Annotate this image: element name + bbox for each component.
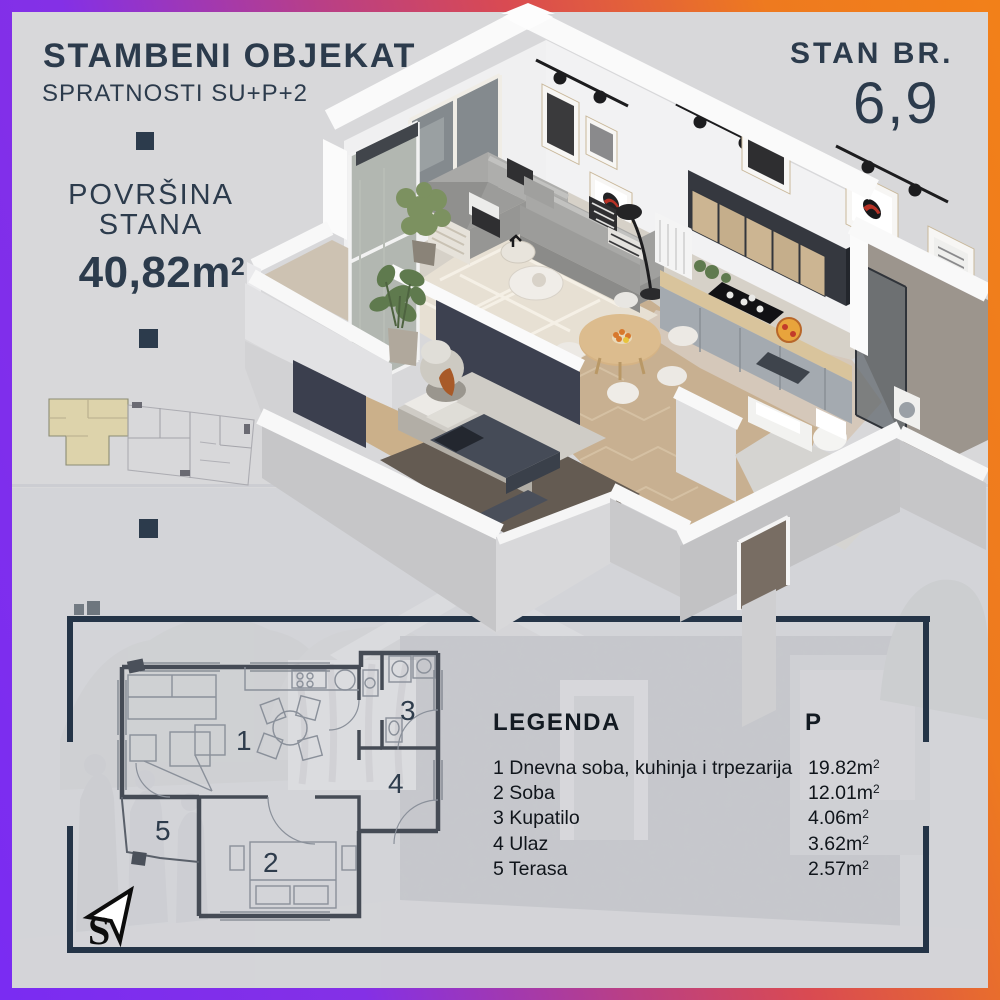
svg-text:1: 1 <box>236 725 252 756</box>
svg-text:2: 2 <box>263 847 279 878</box>
svg-text:4: 4 <box>388 768 404 799</box>
svg-text:3: 3 <box>400 695 416 726</box>
svg-text:S: S <box>88 908 110 953</box>
svg-text:5: 5 <box>155 815 171 846</box>
